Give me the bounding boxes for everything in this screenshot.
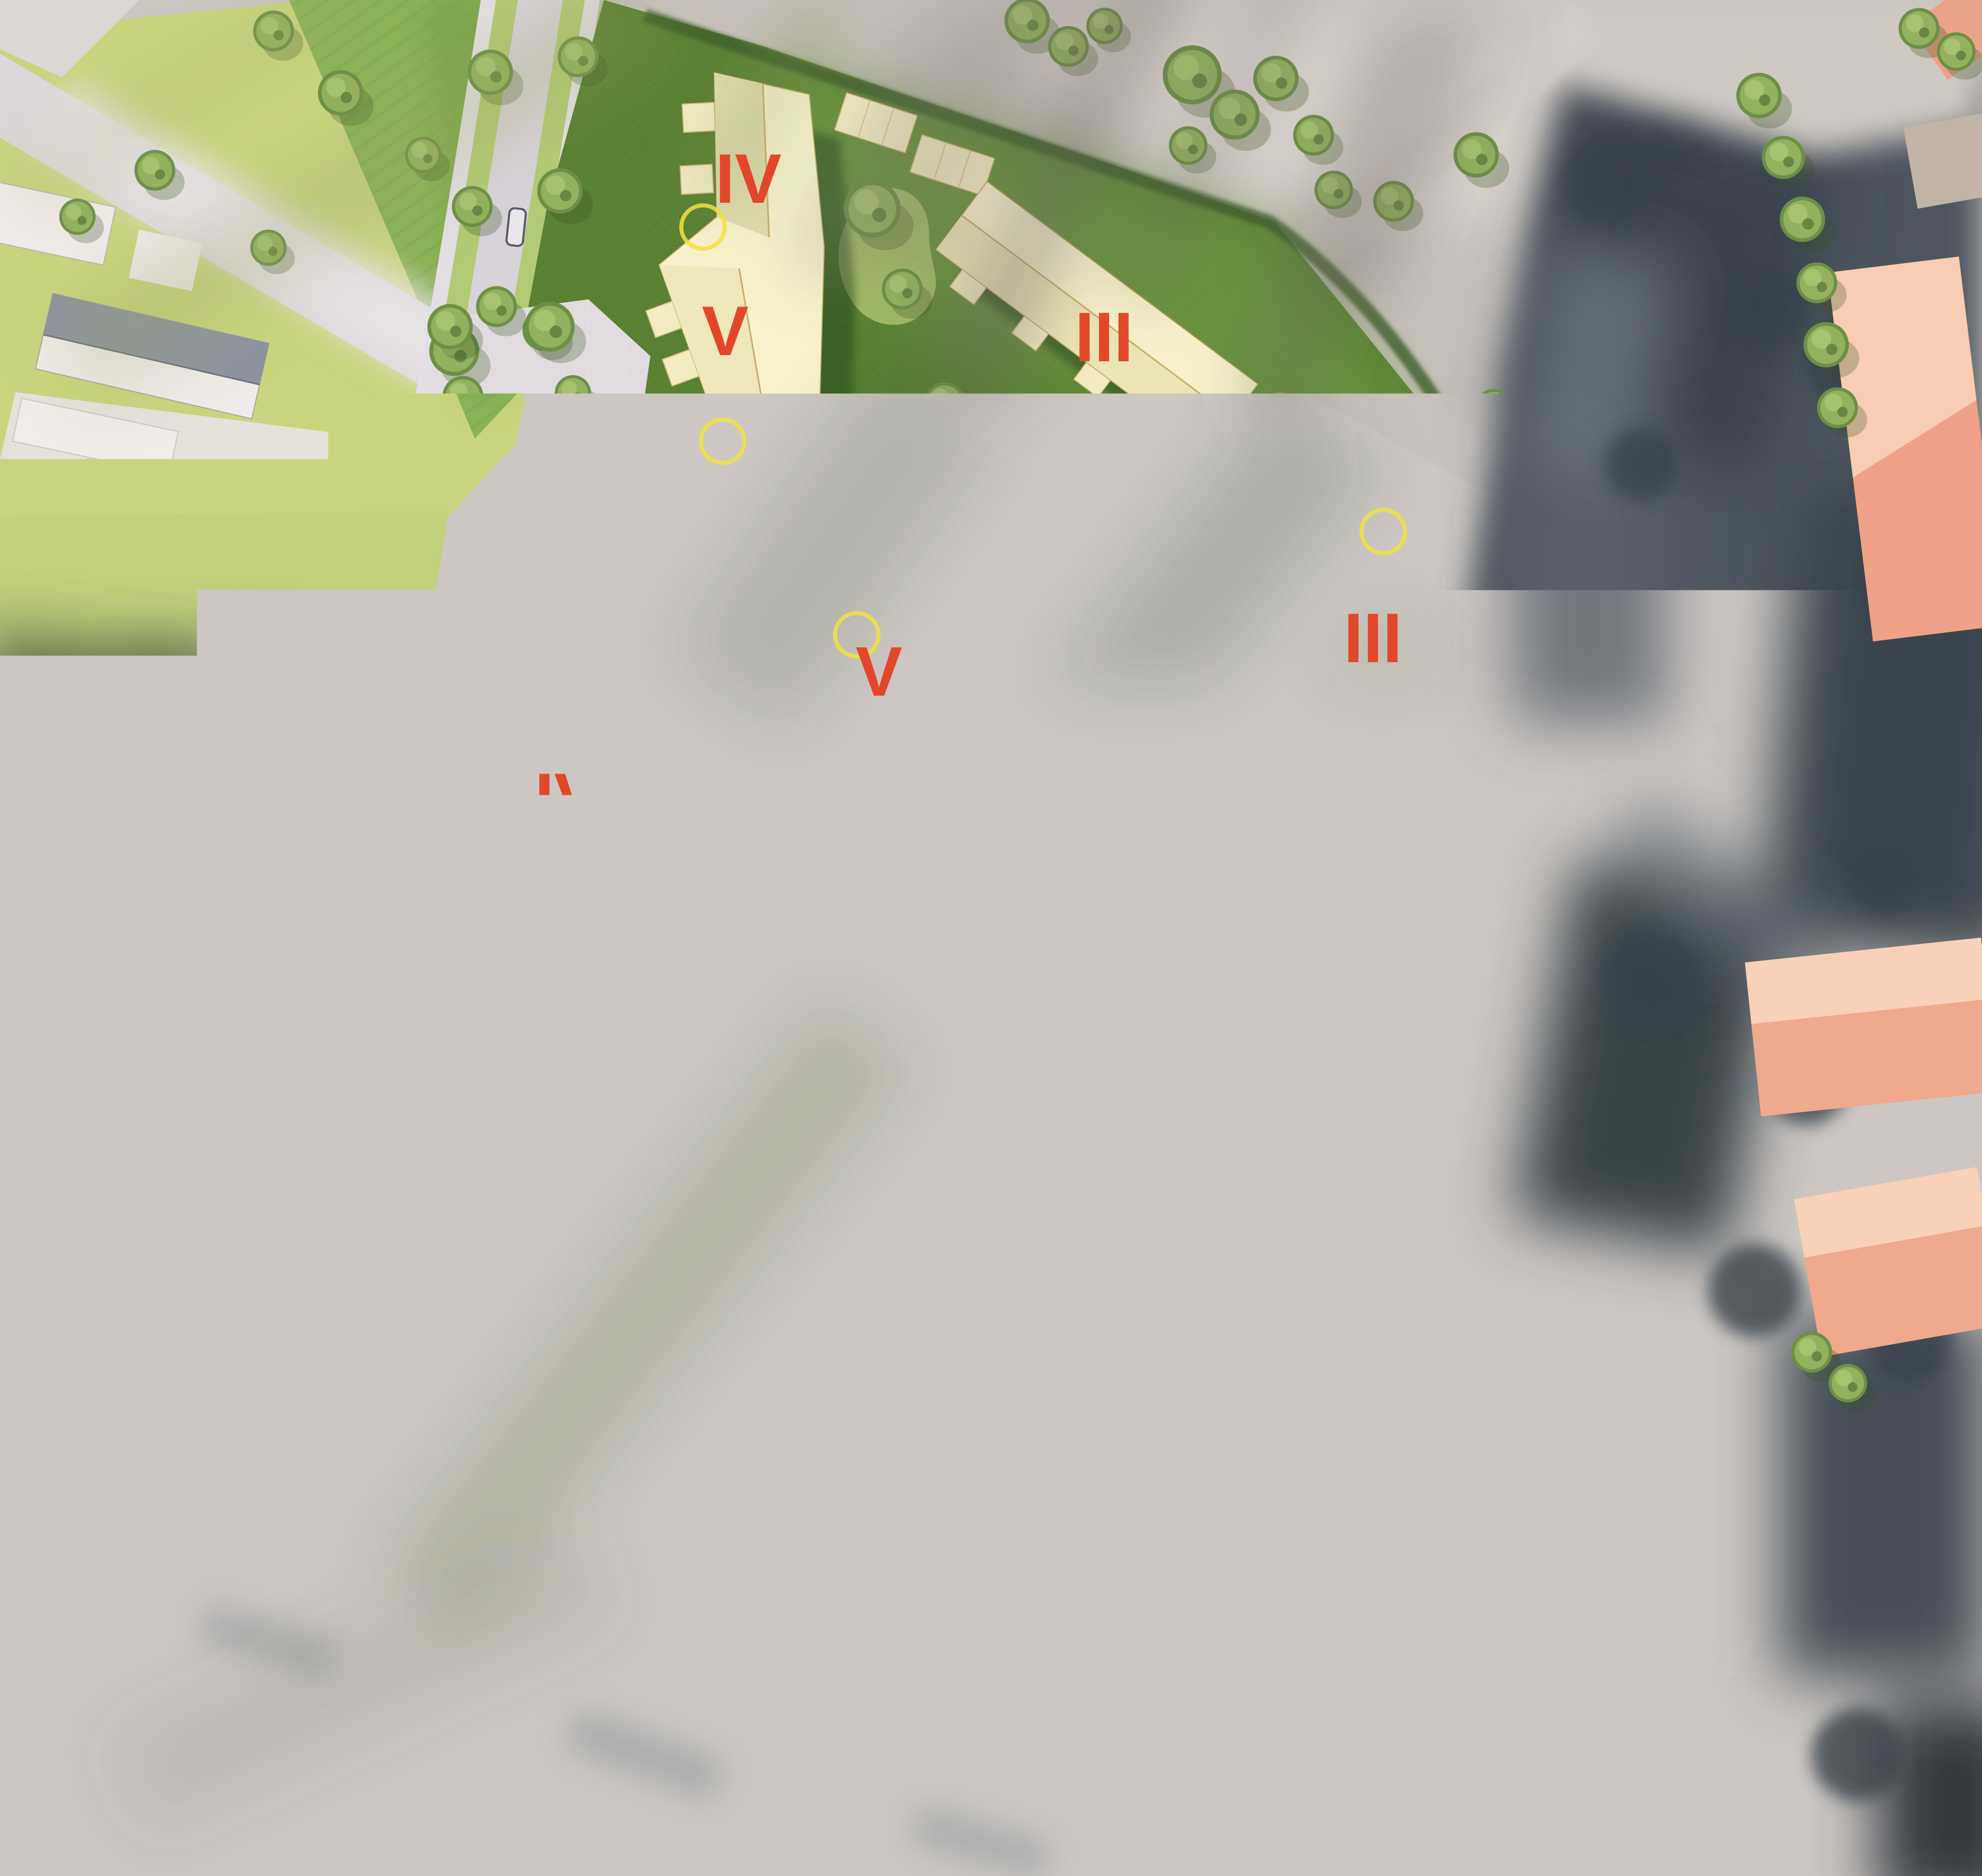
svg-text:IV: IV	[1354, 1463, 1420, 1542]
svg-text:III: III	[626, 900, 684, 978]
svg-text:IV: IV	[1234, 965, 1301, 1044]
svg-text:III: III	[966, 1533, 1024, 1611]
svg-text:IV: IV	[341, 1174, 408, 1253]
svg-text:N: N	[88, 1717, 108, 1747]
svg-text:V: V	[702, 292, 749, 370]
svg-text:IV: IV	[545, 1505, 612, 1584]
svg-text:IV: IV	[715, 139, 782, 218]
svg-text:V: V	[856, 632, 903, 711]
svg-text:IV: IV	[968, 759, 1035, 837]
svg-text:IV: IV	[535, 759, 601, 837]
svg-text:III: III	[1075, 298, 1133, 376]
svg-text:III: III	[1344, 599, 1402, 677]
svg-text:IV: IV	[1129, 1701, 1196, 1779]
svg-text:III: III	[1104, 1210, 1162, 1289]
svg-text:III: III	[755, 1148, 813, 1227]
svg-text:III: III	[698, 1309, 757, 1388]
